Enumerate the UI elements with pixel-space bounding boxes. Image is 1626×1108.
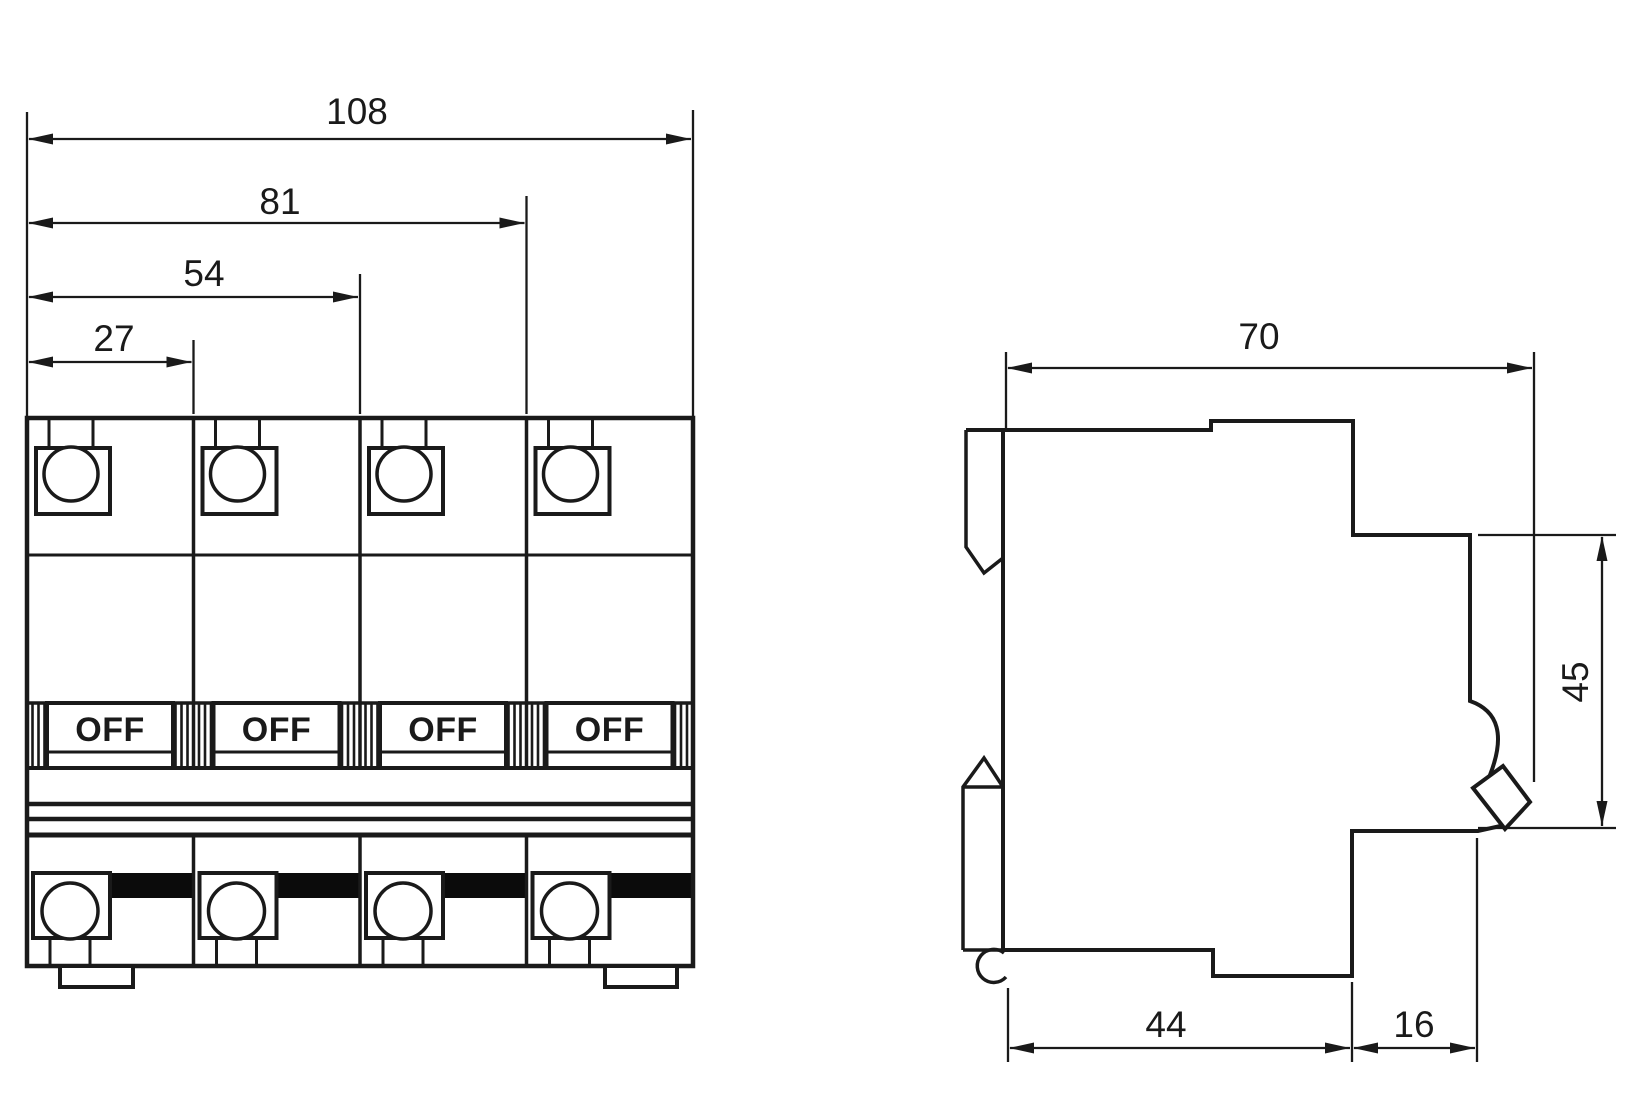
dim-70-label: 70 <box>1238 316 1279 357</box>
drawing-page: OFF OFF OFF OFF <box>0 0 1626 1108</box>
side-view: 70 45 44 16 <box>963 316 1616 1062</box>
dimension-base-depth: 44 <box>1008 982 1352 1062</box>
din-clip-top <box>966 430 1003 573</box>
dimension-face-depth: 16 <box>1354 838 1477 1062</box>
din-clip-roller <box>977 949 1006 982</box>
mounting-foot-right <box>605 966 677 987</box>
dim-16-label: 16 <box>1393 1004 1434 1045</box>
pole-4-state-label: OFF <box>575 711 644 749</box>
mounting-foot-left <box>60 966 133 987</box>
front-view: OFF OFF OFF OFF <box>27 91 693 987</box>
pole-3-state-label: OFF <box>408 711 477 749</box>
dim-27-label: 27 <box>93 318 134 359</box>
pole-module-2 <box>199 418 360 966</box>
dimension-overall-depth: 70 <box>1006 316 1534 782</box>
pole-1-state-label: OFF <box>75 711 144 749</box>
pole-2-state-label: OFF <box>242 711 311 749</box>
dim-108-label: 108 <box>326 91 388 132</box>
din-clip-bottom <box>963 758 1003 950</box>
dimension-one-module: 27 <box>29 318 194 414</box>
side-toggle-handle <box>1473 766 1530 829</box>
pole-module-1 <box>33 418 194 966</box>
pole-module-3 <box>366 418 527 966</box>
side-housing-profile <box>966 421 1505 976</box>
dim-45-label: 45 <box>1555 661 1596 702</box>
pole-module-4 <box>532 418 693 966</box>
technical-drawing-canvas: OFF OFF OFF OFF <box>0 0 1626 1108</box>
dim-54-label: 54 <box>183 253 224 294</box>
dim-81-label: 81 <box>259 181 300 222</box>
dim-44-label: 44 <box>1145 1004 1186 1045</box>
